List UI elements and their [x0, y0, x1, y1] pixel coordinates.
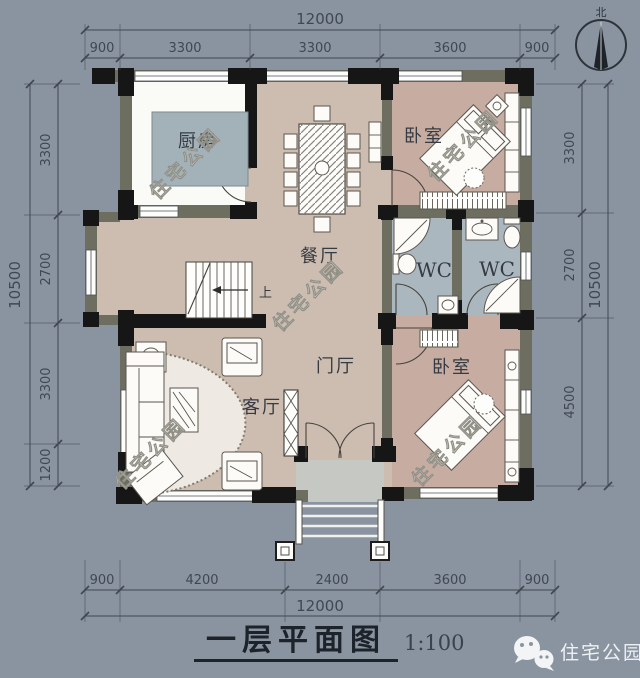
title-underline — [194, 659, 398, 662]
kitchen-hatch-window — [140, 206, 178, 217]
floor-plan-page: 上 — [0, 0, 640, 678]
foyer-label: 门厅 — [316, 356, 356, 377]
dim-top-seg: 3300 — [298, 41, 331, 56]
title-block: 一层平面图 1:100 — [194, 623, 465, 662]
dim-bottom-overall: 12000 — [296, 597, 344, 615]
dim-top-overall: 12000 — [296, 10, 344, 28]
chair — [347, 153, 360, 168]
round-rug — [464, 168, 484, 188]
dim-bottom-seg: 900 — [525, 573, 550, 588]
north-compass: 北 — [576, 6, 626, 70]
sideboard — [369, 122, 381, 162]
chair — [284, 153, 297, 168]
round-rug — [474, 394, 494, 414]
plan-title: 一层平面图 — [206, 623, 386, 658]
dim-left-seg: 2700 — [39, 252, 54, 285]
bedroom-top-label: 卧室 — [404, 126, 444, 147]
armchair — [222, 338, 262, 376]
chair — [314, 217, 330, 232]
dim-right-overall: 10500 — [586, 261, 604, 309]
toilet — [504, 218, 520, 248]
wc-right-label: WC — [479, 257, 515, 281]
stairs-up-label: 上 — [259, 286, 272, 301]
armchair — [222, 452, 262, 490]
dim-right-seg: 2700 — [563, 248, 578, 281]
stair-bay-window — [86, 250, 96, 295]
dim-top-seg: 3600 — [433, 41, 466, 56]
porch-floor — [296, 460, 384, 502]
chair — [314, 106, 330, 121]
wash-basin — [466, 218, 498, 240]
wc-left-label: WC — [416, 258, 452, 282]
living-label: 客厅 — [242, 397, 282, 418]
dim-left-overall: 10500 — [6, 261, 24, 309]
porch-column — [276, 542, 294, 560]
wechat-icon — [514, 636, 554, 671]
dimensions-bottom: 900 4200 2400 3600 900 12000 — [81, 560, 559, 622]
dim-left-seg: 3300 — [39, 367, 54, 400]
porch-column — [371, 542, 389, 560]
dim-bottom-seg: 3600 — [433, 573, 466, 588]
dim-right-seg: 3300 — [563, 131, 578, 164]
dim-top-seg: 900 — [90, 41, 115, 56]
dimensions-right: 3300 2700 4500 10500 — [536, 80, 614, 490]
entry-steps — [276, 500, 389, 560]
chair — [284, 191, 297, 206]
chair — [284, 134, 297, 149]
bedroom-bottom-window — [420, 488, 498, 498]
bedroom-top-right-window — [521, 108, 531, 156]
dimensions-top: 12000 900 3300 3300 3600 900 — [81, 10, 559, 70]
dim-bottom-seg: 4200 — [185, 573, 218, 588]
dining-top-window — [266, 71, 350, 81]
chair — [347, 172, 360, 187]
plan-scale: 1:100 — [404, 631, 465, 655]
brand-badge: 住宅公园 — [514, 636, 640, 671]
dim-right-seg: 4500 — [563, 385, 578, 418]
chair — [347, 134, 360, 149]
toilet — [393, 254, 416, 274]
dim-top-seg: 900 — [525, 41, 550, 56]
bedroom-bottom-right-window — [521, 390, 531, 414]
floor-plan-image: 上 — [0, 0, 640, 678]
living-room-furniture — [126, 338, 262, 505]
dimensions-left: 10500 3300 2700 3300 1200 — [6, 80, 80, 490]
dim-top-seg: 3300 — [168, 41, 201, 56]
brand-name: 住宅公园 — [560, 642, 640, 664]
north-label: 北 — [596, 6, 607, 19]
bedroom-bottom-label: 卧室 — [432, 357, 472, 378]
dim-bottom-seg: 2400 — [315, 573, 348, 588]
chair — [347, 191, 360, 206]
dim-bottom-seg: 900 — [90, 573, 115, 588]
bedroom-top-window — [398, 71, 462, 81]
chair — [284, 172, 297, 187]
dim-left-seg: 3300 — [39, 133, 54, 166]
entrance-pier — [284, 390, 298, 456]
wash-basin — [438, 296, 458, 314]
table-centerpiece — [315, 161, 329, 175]
kitchen-top-window — [135, 71, 230, 81]
wc-right-window — [521, 252, 531, 280]
living-bottom-window — [157, 491, 255, 501]
dim-left-seg: 1200 — [39, 448, 54, 481]
